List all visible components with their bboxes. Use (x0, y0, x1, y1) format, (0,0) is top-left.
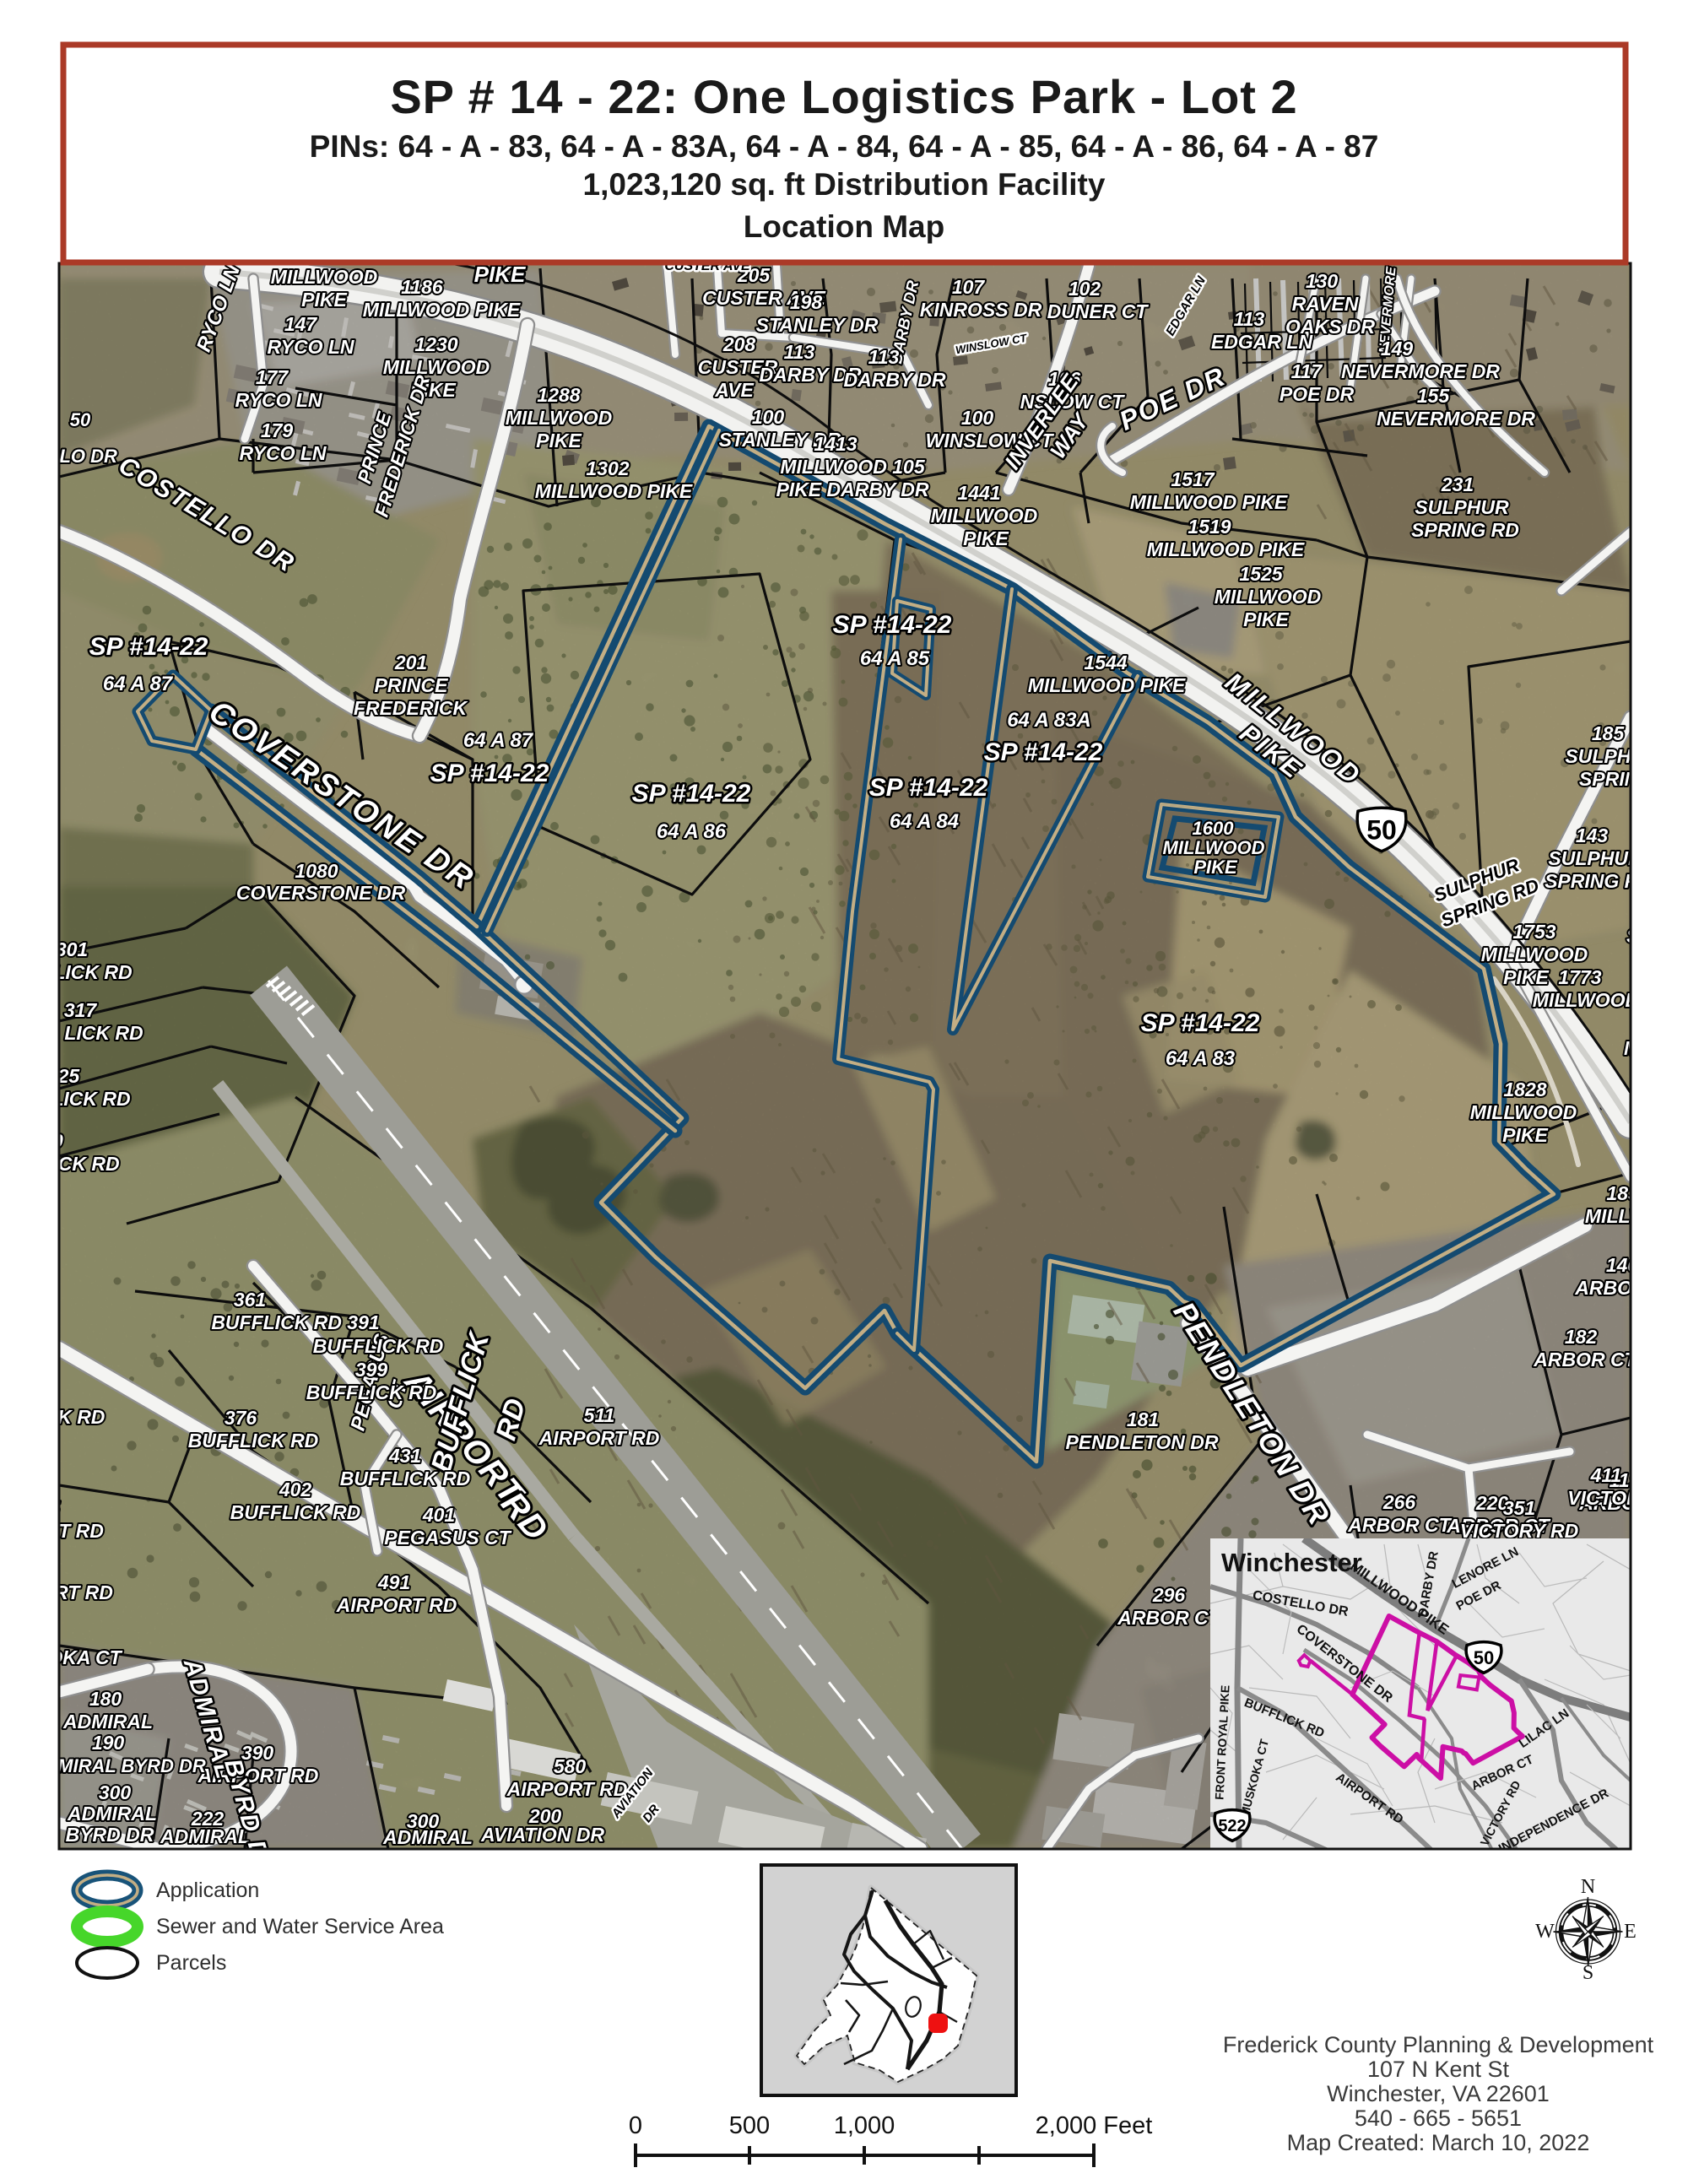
svg-text:198: 198 (790, 291, 823, 313)
svg-text:MILLWOOD: MILLWOOD (1470, 1101, 1577, 1123)
svg-text:580: 580 (554, 1755, 587, 1777)
svg-text:BYRD DR: BYRD DR (66, 1824, 154, 1846)
svg-text:1753: 1753 (1512, 921, 1555, 943)
svg-text:143: 143 (1576, 824, 1609, 846)
svg-text:W: W (1535, 1921, 1555, 1943)
svg-text:BUFFLICK RD: BUFFLICK RD (188, 1430, 319, 1451)
svg-text:Map Created: March 10, 2022: Map Created: March 10, 2022 (1287, 2130, 1590, 2155)
svg-text:50: 50 (1474, 1647, 1494, 1668)
svg-text:RYCO LN: RYCO LN (239, 442, 326, 464)
svg-text:300: 300 (99, 1781, 132, 1803)
svg-text:N: N (1581, 1876, 1595, 1898)
svg-text:50: 50 (70, 409, 91, 430)
svg-text:64 A 84: 64 A 84 (890, 810, 959, 833)
svg-text:KINROSS DR: KINROSS DR (920, 299, 1042, 321)
svg-text:SULPHUR: SULPHUR (1548, 847, 1642, 869)
svg-text:376: 376 (225, 1407, 257, 1429)
svg-text:MILLWOOD: MILLWOOD (506, 407, 612, 429)
svg-text:Location Map: Location Map (744, 209, 944, 244)
svg-text:PIKE: PIKE (1243, 608, 1289, 630)
svg-text:399: 399 (355, 1359, 388, 1381)
svg-text:2,000 Feet: 2,000 Feet (1036, 2112, 1153, 2139)
svg-text:231: 231 (1441, 473, 1474, 495)
svg-text:PIKE: PIKE (1502, 1124, 1548, 1146)
svg-text:Sewer and Water Service Area: Sewer and Water Service Area (156, 1915, 444, 1938)
svg-text:MILLWOOD 105: MILLWOOD 105 (780, 456, 925, 478)
svg-text:RAVEN: RAVEN (1292, 293, 1359, 315)
svg-text:BUFFLICK RD: BUFFLICK RD (306, 1381, 437, 1403)
svg-text:MILLWOOD PIKE: MILLWOOD PIKE (363, 299, 521, 321)
svg-text:DUNER CT: DUNER CT (1047, 300, 1150, 322)
svg-text:MILLWOOD: MILLWOOD (1163, 837, 1265, 858)
svg-text:PIKE: PIKE (1193, 857, 1238, 878)
svg-text:PIKE: PIKE (963, 527, 1009, 549)
svg-text:1230: 1230 (414, 333, 457, 355)
svg-text:PRINCE: PRINCE (375, 674, 449, 696)
svg-text:180: 180 (89, 1688, 122, 1710)
svg-text:1080: 1080 (295, 860, 338, 882)
svg-text:SP #14-22: SP #14-22 (632, 780, 751, 808)
svg-text:185: 185 (1592, 722, 1626, 744)
svg-text:1413: 1413 (814, 433, 857, 455)
svg-text:Winchester, VA 22601: Winchester, VA 22601 (1327, 2081, 1550, 2106)
svg-text:491: 491 (377, 1571, 410, 1593)
svg-text:ARBOR CT: ARBOR CT (1533, 1349, 1637, 1370)
svg-text:PIKE: PIKE (536, 430, 582, 451)
svg-text:1,000: 1,000 (834, 2112, 895, 2139)
svg-text:Application: Application (156, 1879, 259, 1902)
svg-text:361: 361 (234, 1289, 266, 1311)
svg-text:1288: 1288 (537, 384, 580, 406)
svg-text:PIKE: PIKE (301, 289, 347, 311)
svg-text:DMIRAL BYRD DR: DMIRAL BYRD DR (44, 1755, 206, 1776)
svg-text:182: 182 (1565, 1326, 1598, 1348)
svg-text:COVERSTONE DR: COVERSTONE DR (236, 882, 406, 904)
svg-text:LICK RD: LICK RD (51, 1088, 130, 1110)
svg-text:MILLWOOD PIKE: MILLWOOD PIKE (535, 480, 693, 502)
svg-text:540 - 665 - 5651: 540 - 665 - 5651 (1355, 2106, 1522, 2131)
svg-text:OAKS DR: OAKS DR (1285, 316, 1375, 338)
svg-text:1525: 1525 (1239, 563, 1283, 585)
svg-text:NEVERMORE DR: NEVERMORE DR (1341, 360, 1500, 382)
svg-text:POE DR: POE DR (1280, 383, 1355, 405)
svg-text:MILLWOOD: MILLWOOD (383, 356, 490, 378)
svg-text:SP #14-22: SP #14-22 (89, 633, 208, 661)
svg-text:64 A 87: 64 A 87 (463, 729, 534, 752)
svg-text:ADMIRAL: ADMIRAL (62, 1711, 153, 1733)
svg-text:201: 201 (394, 651, 427, 673)
svg-text:266: 266 (1382, 1491, 1416, 1513)
svg-text:ARBOR CT: ARBOR CT (1347, 1514, 1452, 1536)
svg-text:107: 107 (952, 276, 986, 298)
svg-text:401: 401 (422, 1504, 455, 1526)
svg-text:AIRPORT RD: AIRPORT RD (336, 1594, 457, 1616)
svg-text:64 A 83A: 64 A 83A (1007, 709, 1091, 732)
svg-text:147: 147 (284, 313, 318, 335)
svg-text:1773: 1773 (1558, 966, 1601, 988)
svg-text:ADMIRAL: ADMIRAL (67, 1803, 157, 1825)
svg-text:MILLWOOD: MILLWOOD (271, 266, 377, 288)
svg-text:BUFFLICK RD: BUFFLICK RD (230, 1501, 361, 1523)
svg-text:ARBOR CT: ARBOR CT (1117, 1607, 1221, 1629)
svg-text:RYCO LN: RYCO LN (235, 389, 322, 411)
svg-text:S: S (1582, 1962, 1593, 1984)
svg-text:50: 50 (1366, 815, 1397, 846)
svg-text:181: 181 (1127, 1408, 1159, 1430)
svg-text:AIRPORT RD: AIRPORT RD (538, 1427, 660, 1449)
svg-text:LICK RD: LICK RD (64, 1022, 143, 1044)
svg-text:1,023,120 sq. ft Distribution: 1,023,120 sq. ft Distribution Facility (583, 167, 1106, 202)
svg-text:411: 411 (1590, 1464, 1622, 1486)
svg-text:1828: 1828 (1503, 1078, 1546, 1100)
svg-text:1302: 1302 (586, 457, 629, 479)
svg-text:AVE: AVE (714, 379, 754, 401)
svg-text:SULPHUR: SULPHUR (1415, 496, 1509, 518)
svg-text:102: 102 (1069, 278, 1101, 300)
svg-text:PENDLETON DR: PENDLETON DR (1065, 1431, 1218, 1453)
svg-text:PIKE: PIKE (1503, 966, 1549, 988)
svg-text:1600: 1600 (1193, 818, 1235, 839)
svg-text:208: 208 (722, 333, 756, 355)
svg-text:Frederick County Planning & De: Frederick County Planning & Development (1223, 2032, 1654, 2057)
svg-text:0: 0 (629, 2112, 642, 2139)
svg-text:PINs: 64 - A - 83, 64 - A - 83: PINs: 64 - A - 83, 64 - A - 83A, 64 - A … (310, 129, 1379, 164)
svg-text:BUFFLICK RD 391: BUFFLICK RD 391 (211, 1311, 379, 1333)
svg-text:317: 317 (64, 999, 98, 1021)
svg-text:402: 402 (279, 1479, 312, 1500)
svg-text:1544: 1544 (1084, 651, 1127, 673)
svg-text:E: E (1624, 1921, 1637, 1943)
svg-text:149: 149 (1381, 338, 1414, 359)
svg-text:113: 113 (784, 341, 815, 363)
svg-text:SP #14-22: SP #14-22 (869, 774, 988, 802)
svg-text:SP #14-22: SP #14-22 (833, 611, 952, 639)
svg-text:MILLWOOD PIKE: MILLWOOD PIKE (1147, 538, 1305, 560)
svg-text:AVIATION DR: AVIATION DR (480, 1824, 604, 1846)
svg-text:522: 522 (1218, 1817, 1246, 1835)
svg-text:190: 190 (92, 1732, 125, 1754)
svg-text:431: 431 (388, 1445, 421, 1467)
svg-text:64 A 83: 64 A 83 (1166, 1047, 1236, 1070)
svg-text:100: 100 (961, 407, 994, 429)
svg-text:DARBY DR: DARBY DR (844, 369, 946, 391)
svg-text:SP # 14 - 22: One Logistics Pa: SP # 14 - 22: One Logistics Park - Lot 2 (390, 70, 1297, 123)
svg-text:SP #14-22: SP #14-22 (430, 760, 549, 787)
svg-text:179: 179 (261, 419, 294, 441)
svg-text:ADMIRAL: ADMIRAL (160, 1825, 250, 1847)
svg-text:PIKE DARBY DR: PIKE DARBY DR (776, 478, 928, 500)
svg-text:64 A 86: 64 A 86 (657, 820, 727, 843)
svg-text:130: 130 (1306, 270, 1339, 292)
svg-text:155: 155 (1417, 385, 1451, 407)
svg-text:SP #14-22: SP #14-22 (1141, 1009, 1260, 1037)
svg-text:AIRPORT RD: AIRPORT RD (506, 1778, 628, 1800)
svg-text:113: 113 (868, 346, 900, 368)
svg-text:511: 511 (584, 1404, 615, 1426)
svg-text:Parcels: Parcels (156, 1951, 226, 1975)
svg-text:1186: 1186 (401, 276, 443, 298)
svg-text:MILLWOOD: MILLWOOD (1215, 586, 1321, 608)
svg-text:ADMIRAL: ADMIRAL (382, 1826, 473, 1848)
svg-text:113: 113 (1234, 308, 1265, 330)
svg-text:351: 351 (1503, 1497, 1535, 1519)
svg-text:LICK RD: LICK RD (53, 961, 132, 983)
svg-text:301: 301 (56, 938, 88, 960)
svg-text:1441: 1441 (957, 482, 1000, 504)
svg-text:64 A 87: 64 A 87 (103, 673, 174, 695)
svg-text:Winchester: Winchester (1221, 1548, 1362, 1577)
svg-text:MILLWOOD: MILLWOOD (931, 505, 1037, 527)
svg-text:177: 177 (256, 366, 289, 388)
svg-text:117: 117 (1291, 360, 1323, 382)
svg-text:100: 100 (752, 406, 785, 428)
svg-text:1519: 1519 (1188, 516, 1231, 538)
svg-text:107 N Kent St: 107 N Kent St (1367, 2057, 1510, 2082)
svg-text:STANLEY DR: STANLEY DR (756, 314, 879, 336)
svg-text:64 A 85: 64 A 85 (860, 647, 930, 670)
svg-text:MILLWOOD PIKE: MILLWOOD PIKE (1028, 674, 1186, 696)
svg-text:MILLWOOD PIKE: MILLWOOD PIKE (1130, 491, 1288, 513)
svg-text:SP #14-22: SP #14-22 (984, 738, 1103, 766)
svg-text:1517: 1517 (1171, 468, 1215, 490)
svg-text:RYCO LN: RYCO LN (267, 336, 354, 358)
svg-text:BUFFLICK RD: BUFFLICK RD (313, 1335, 444, 1357)
svg-text:FREDERICK: FREDERICK (354, 697, 468, 719)
svg-text:SPRING RD: SPRING RD (1411, 519, 1519, 541)
svg-text:500: 500 (729, 2112, 770, 2139)
svg-text:296: 296 (1152, 1584, 1186, 1606)
svg-text:PEGASUS CT: PEGASUS CT (384, 1527, 511, 1549)
svg-text:NEVERMORE DR: NEVERMORE DR (1377, 408, 1535, 430)
svg-text:MILLWOOD: MILLWOOD (1481, 943, 1588, 965)
svg-text:BUFFLICK RD: BUFFLICK RD (340, 1468, 471, 1489)
